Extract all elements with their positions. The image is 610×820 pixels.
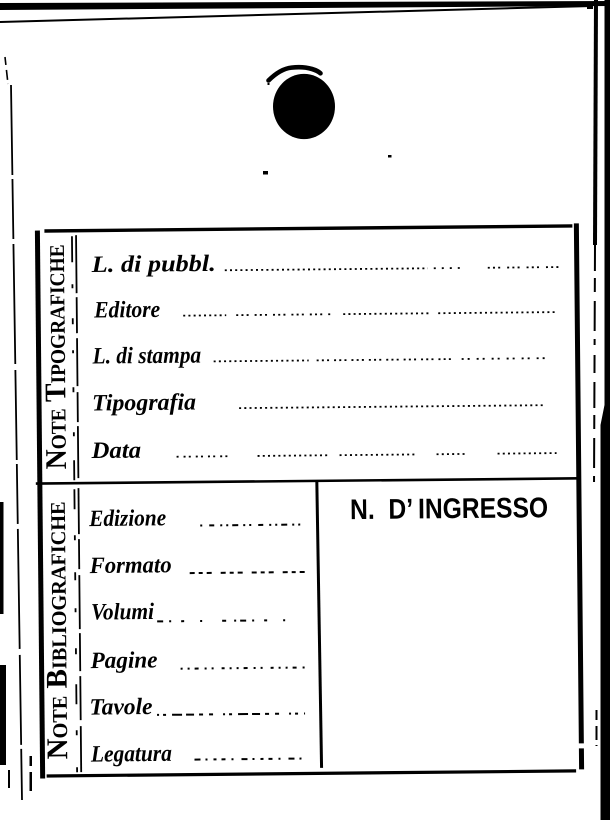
svg-text:Editore: Editore xyxy=(93,297,160,324)
svg-text:L. di stampa: L. di stampa xyxy=(92,342,202,369)
svg-text:Formato: Formato xyxy=(89,552,172,579)
svg-text:Edizione: Edizione xyxy=(88,505,166,532)
svg-text:Data: Data xyxy=(90,438,141,464)
svg-text:L. di pubbl.: L. di pubbl. xyxy=(90,251,215,278)
svg-text:Volumi: Volumi xyxy=(91,599,155,626)
svg-text:Legatura: Legatura xyxy=(90,741,172,768)
svg-text:Tipografia: Tipografia xyxy=(92,390,196,417)
svg-text:N. D’ INGRESSO: N. D’ INGRESSO xyxy=(350,492,548,526)
svg-text:Note Bibliografiche: Note Bibliografiche xyxy=(39,501,74,759)
svg-text:Pagine: Pagine xyxy=(89,647,157,674)
svg-text:Tavole: Tavole xyxy=(89,694,152,721)
svg-text:Note Tipografiche: Note Tipografiche xyxy=(38,244,73,469)
